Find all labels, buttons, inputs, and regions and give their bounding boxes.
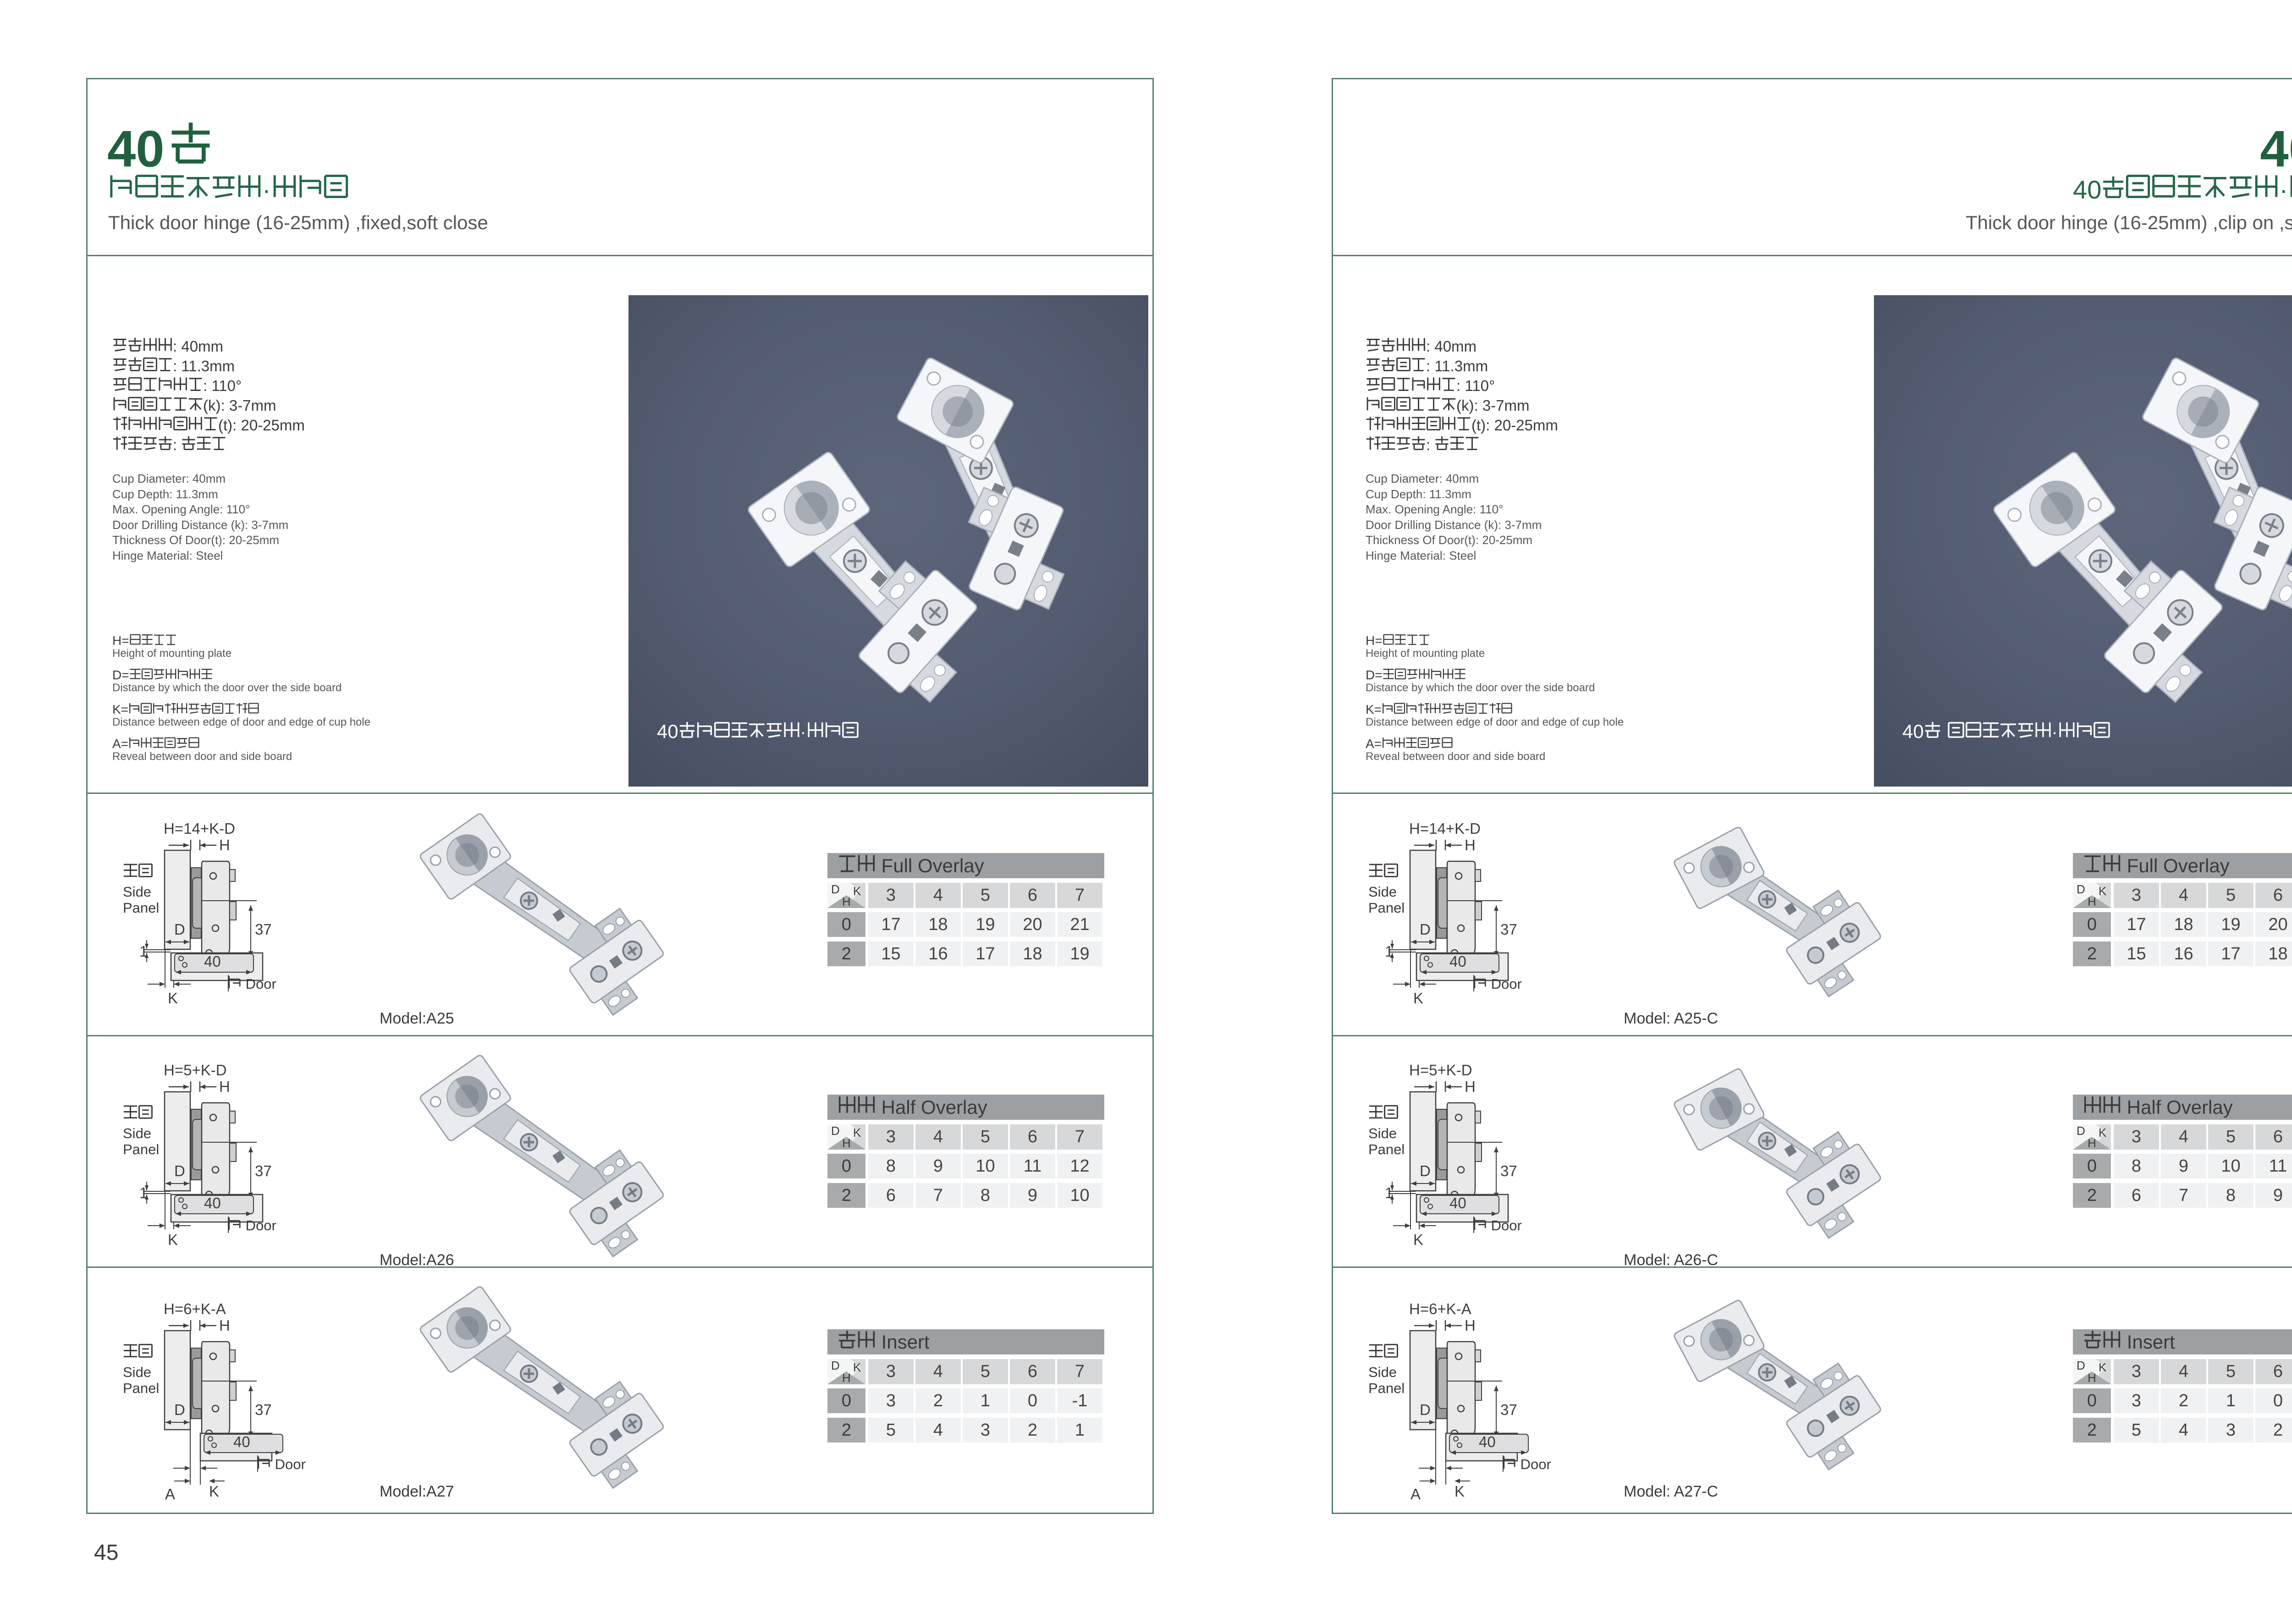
svg-text:H: H [2088,1371,2096,1384]
svg-text:40: 40 [204,1195,221,1211]
svg-text:D: D [174,1162,185,1179]
svg-text:H=6+K-A: H=6+K-A [164,1300,226,1317]
svg-text:D: D [831,1359,840,1372]
svg-text:K: K [168,1231,178,1248]
svg-text:K: K [2099,884,2107,898]
svg-text:K: K [2099,1126,2107,1140]
svg-text:40: 40 [1449,953,1466,970]
svg-text:37: 37 [1500,1162,1517,1179]
svg-text:37: 37 [255,1162,272,1179]
svg-text:K: K [853,1360,861,1374]
svg-text:37: 37 [1500,1401,1517,1418]
svg-text:H=14+K-D: H=14+K-D [164,820,235,837]
svg-text:D: D [174,921,185,938]
svg-text:H: H [842,1371,851,1384]
svg-text:H: H [219,837,230,853]
svg-text:40: 40 [233,1433,250,1450]
svg-text:H: H [219,1078,230,1095]
svg-text:H: H [1465,1078,1476,1095]
svg-text:A: A [1410,1486,1421,1503]
svg-text:K: K [168,990,178,1007]
svg-text:H=14+K-D: H=14+K-D [1409,820,1481,837]
svg-text:D: D [831,883,840,896]
svg-text:D: D [1420,1162,1431,1179]
svg-text:D: D [831,1124,840,1138]
svg-text:D: D [174,1401,185,1418]
svg-text:37: 37 [255,921,272,938]
svg-text:K: K [1413,990,1423,1007]
svg-text:D: D [2077,1124,2085,1138]
svg-text:H: H [2088,1136,2096,1150]
svg-text:K: K [209,1483,219,1500]
svg-text:D: D [1420,1401,1431,1418]
svg-text:H=5+K-D: H=5+K-D [164,1062,227,1079]
svg-text:H: H [1465,1317,1476,1334]
svg-text:40: 40 [1449,1195,1466,1211]
svg-text:37: 37 [255,1401,272,1418]
svg-text:H: H [842,895,851,908]
svg-text:H: H [842,1136,851,1150]
svg-text:H=5+K-D: H=5+K-D [1409,1062,1472,1079]
svg-text:H=6+K-A: H=6+K-A [1409,1300,1471,1317]
svg-text:D: D [1420,921,1431,938]
svg-text:K: K [1413,1231,1423,1248]
svg-text:40: 40 [204,953,221,970]
svg-text:D: D [2077,1359,2085,1372]
svg-text:H: H [219,1317,230,1334]
svg-text:A: A [165,1486,175,1503]
svg-text:37: 37 [1500,921,1517,938]
svg-text:H: H [2088,895,2096,908]
svg-text:K: K [853,1126,861,1140]
svg-text:K: K [853,884,861,898]
svg-text:40: 40 [1479,1433,1496,1450]
svg-text:H: H [1465,837,1476,853]
svg-text:K: K [1455,1483,1465,1500]
svg-text:K: K [2099,1360,2107,1374]
svg-text:D: D [2077,883,2085,896]
